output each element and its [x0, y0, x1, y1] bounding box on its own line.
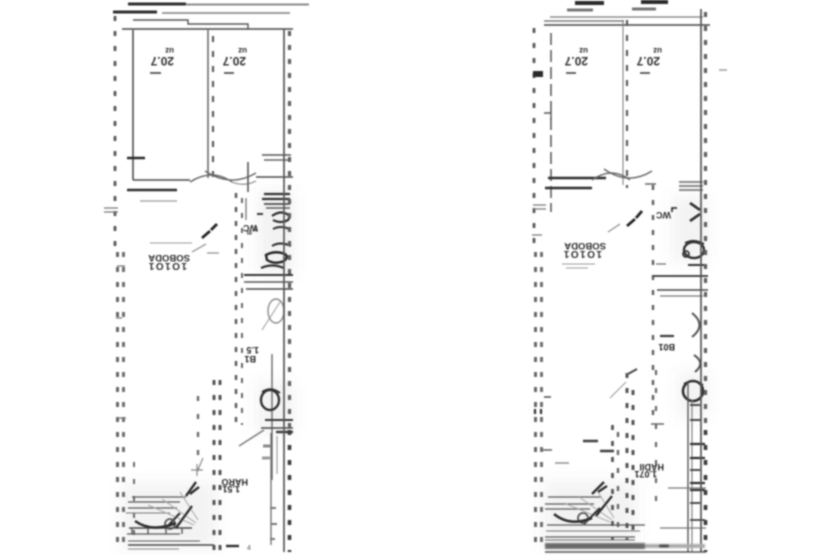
svg-text:20.7: 20.7	[222, 54, 246, 68]
svg-text:20.7: 20.7	[564, 54, 588, 68]
svg-text:uz: uz	[238, 46, 247, 55]
svg-text:1.071: 1.071	[634, 469, 657, 479]
svg-text:1.5: 1.5	[246, 345, 259, 355]
svg-text:20.7: 20.7	[636, 54, 660, 68]
svg-text:1O1O1: 1O1O1	[147, 260, 187, 271]
svg-text:m: m	[247, 229, 252, 235]
svg-text:uz: uz	[165, 46, 174, 55]
svg-text:1O1O1: 1O1O1	[562, 248, 602, 259]
svg-text:4: 4	[247, 545, 251, 552]
svg-text:uz: uz	[653, 46, 662, 55]
svg-text:WC: WC	[656, 210, 671, 220]
svg-text:B1: B1	[244, 354, 256, 364]
svg-text:B01: B01	[658, 342, 675, 352]
svg-text:1.51: 1.51	[222, 484, 240, 494]
svg-text:20.7: 20.7	[150, 54, 174, 68]
svg-text:uz: uz	[579, 46, 588, 55]
